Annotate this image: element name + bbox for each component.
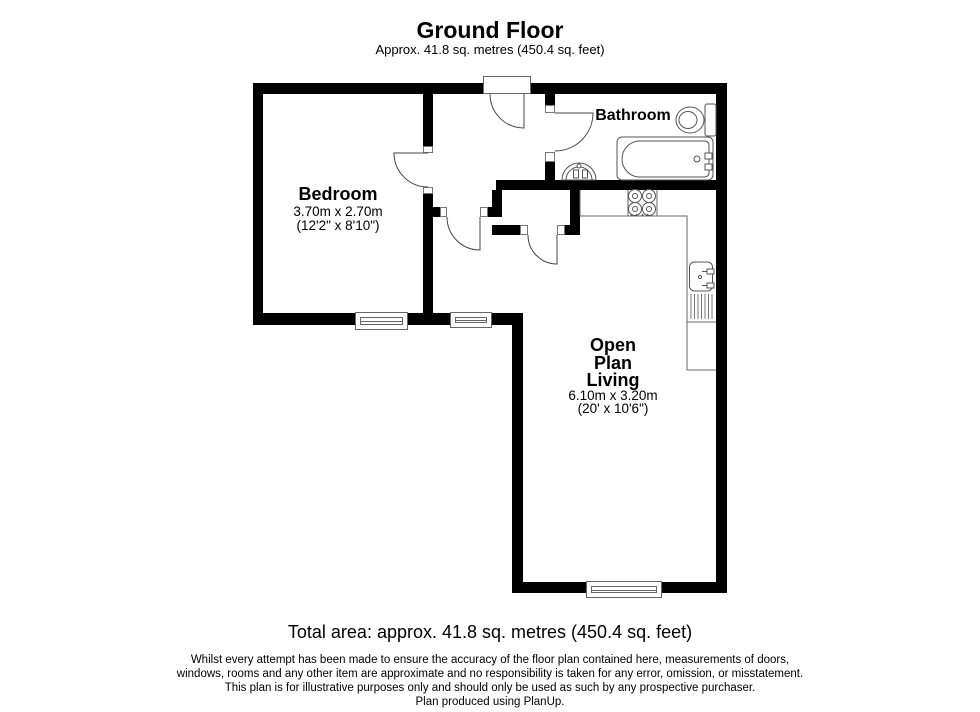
door-jamb [545, 152, 555, 162]
page-subtitle: Approx. 41.8 sq. metres (450.4 sq. feet) [0, 42, 980, 57]
disclaimer-line: Whilst every attempt has been made to en… [0, 653, 980, 667]
disclaimer-line: This plan is for illustrative purposes o… [0, 681, 980, 695]
wall-bathroom-door-upper [545, 94, 555, 105]
room-label-bathroom: Bathroom [553, 107, 713, 125]
page-title: Ground Floor [0, 17, 980, 44]
door-swing-icon-hall [447, 217, 480, 250]
door-swing-icon-bedroom [394, 153, 428, 187]
window-icon [450, 312, 492, 328]
door-swing-icon-entrance [490, 94, 524, 128]
wall-cupboard-right [570, 190, 580, 235]
door-jamb [557, 225, 565, 235]
wall-bathroom-bottom [496, 180, 716, 190]
room-label-bedroom: Bedroom [238, 185, 438, 203]
wall-top-right [531, 83, 727, 94]
room-label-living-line3: Living [513, 371, 713, 389]
door-jamb [480, 207, 488, 217]
wall-bedroom-divider-upper [423, 94, 433, 146]
wall-top-left [253, 83, 484, 94]
kitchen-sink-icon [690, 262, 715, 291]
room-label-living-line1: Open [513, 336, 713, 354]
drainer-icon [691, 294, 712, 319]
door-jamb [520, 225, 528, 235]
pedestal-sink-icon [562, 163, 596, 180]
entrance-door-recess [483, 76, 531, 94]
room-dims-bedroom-metric: 3.70m x 2.70m [238, 205, 438, 219]
room-dims-living-imperial: (20' x 10'6") [513, 402, 713, 416]
window-glass-line [360, 321, 403, 322]
room-dims-bedroom-imperial: (12'2" x 8'10") [238, 219, 438, 233]
door-jamb [440, 207, 447, 217]
disclaimer-line: Plan produced using PlanUp. [0, 695, 980, 709]
wall-hall-stub-right [488, 207, 502, 217]
wall-cupboard-bottom-left [492, 225, 520, 235]
window-icon [355, 312, 408, 330]
fixtures-layer [0, 0, 980, 712]
hob-icon [629, 190, 656, 217]
disclaimer-line: windows, rooms and any other item are ap… [0, 667, 980, 681]
window-icon [586, 581, 662, 598]
door-swing-icon-cupboard [528, 235, 557, 264]
door-jamb [423, 146, 433, 153]
wall-bedroom-left [253, 83, 263, 325]
total-area-text: Total area: approx. 41.8 sq. metres (450… [0, 622, 980, 643]
window-glass-line [455, 320, 487, 321]
bath-icon [617, 137, 713, 180]
wall-right [716, 83, 727, 593]
window-glass-line [591, 590, 657, 591]
floorplan-page: Ground Floor Approx. 41.8 sq. metres (45… [0, 0, 980, 712]
